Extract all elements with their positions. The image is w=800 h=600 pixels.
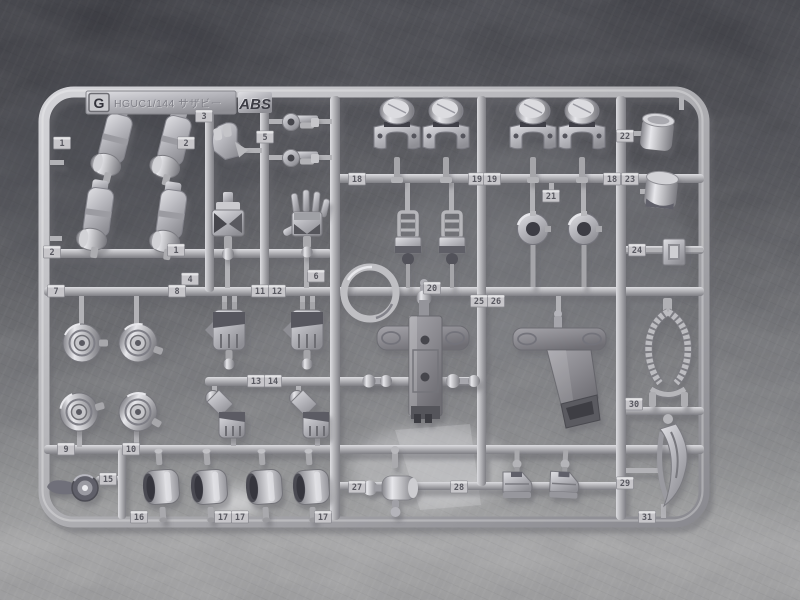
- part-number-tag: 1: [54, 137, 71, 149]
- part-number-tag: 26: [488, 295, 505, 307]
- part-number-tag: 30: [626, 398, 643, 410]
- svg-text:7: 7: [53, 287, 58, 297]
- part-number-tag: 14: [265, 375, 282, 387]
- part-number-tag: 8: [169, 285, 186, 297]
- svg-text:18: 18: [607, 175, 617, 185]
- svg-text:16: 16: [134, 513, 144, 523]
- svg-text:12: 12: [272, 287, 282, 297]
- part-number-tag: 13: [248, 375, 265, 387]
- svg-text:23: 23: [625, 175, 635, 185]
- part-number-tag: 3: [196, 110, 213, 122]
- svg-text:4: 4: [187, 275, 192, 285]
- svg-text:3: 3: [201, 112, 206, 122]
- part-number-tag: 2: [178, 137, 195, 149]
- svg-text:8: 8: [174, 287, 179, 297]
- part-number-tag: 7: [48, 285, 65, 297]
- runner-letter: G: [94, 95, 105, 111]
- material-label: ABS: [238, 96, 271, 113]
- svg-text:22: 22: [620, 132, 630, 142]
- svg-text:15: 15: [103, 475, 113, 485]
- svg-text:10: 10: [126, 445, 136, 455]
- part-number-tag: 4: [182, 273, 199, 285]
- runner-label-plate: G HGUC1/144 サザビー HGUC1/144 サザビー ABS ABS: [86, 91, 272, 114]
- svg-text:31: 31: [642, 513, 652, 523]
- part-number-tag: 6: [308, 270, 325, 282]
- svg-text:6: 6: [313, 272, 318, 282]
- part-number-tag: 21: [543, 190, 560, 202]
- svg-text:29: 29: [620, 479, 630, 489]
- svg-text:13: 13: [251, 377, 261, 387]
- svg-text:1: 1: [173, 246, 178, 256]
- svg-text:30: 30: [629, 400, 639, 410]
- part-number-tag: 17: [215, 511, 232, 523]
- svg-text:17: 17: [318, 513, 328, 523]
- svg-text:11: 11: [255, 287, 265, 297]
- svg-text:24: 24: [632, 246, 642, 256]
- svg-text:17: 17: [218, 513, 228, 523]
- part-number-tag: 29: [617, 477, 634, 489]
- part-number-tag: 12: [269, 285, 286, 297]
- svg-text:27: 27: [352, 483, 362, 493]
- part-number-tag: 20: [424, 282, 441, 294]
- part-number-tag: 22: [617, 130, 634, 142]
- part-number-tag: 23: [622, 173, 639, 185]
- svg-text:14: 14: [268, 377, 278, 387]
- part-number-tag: 9: [58, 443, 75, 455]
- part-number-tag: 19: [469, 173, 486, 185]
- part-number-tag: 18: [604, 173, 621, 185]
- svg-text:5: 5: [262, 133, 267, 143]
- part-number-tag: 2: [44, 246, 61, 258]
- svg-text:2: 2: [183, 139, 188, 149]
- svg-text:20: 20: [427, 284, 437, 294]
- svg-text:18: 18: [352, 175, 362, 185]
- kit-name: HGUC1/144 サザビー: [114, 98, 222, 110]
- part-number-tag: 15: [100, 473, 117, 485]
- svg-text:28: 28: [454, 483, 464, 493]
- svg-text:19: 19: [472, 175, 482, 185]
- part-number-tag: 10: [123, 443, 140, 455]
- part-number-tag: 19: [484, 173, 501, 185]
- svg-text:19: 19: [487, 175, 497, 185]
- svg-text:2: 2: [49, 248, 54, 258]
- model-kit-runner-photo: G HGUC1/144 サザビー HGUC1/144 サザビー ABS ABS …: [0, 0, 800, 600]
- svg-text:17: 17: [235, 513, 245, 523]
- svg-text:21: 21: [546, 192, 556, 202]
- part-number-tag: 1: [168, 244, 185, 256]
- part-number-tag: 31: [639, 511, 656, 523]
- part-number-tag: 17: [315, 511, 332, 523]
- svg-text:1: 1: [59, 139, 64, 149]
- svg-text:25: 25: [474, 297, 484, 307]
- svg-text:26: 26: [491, 297, 501, 307]
- part-number-tag: 5: [257, 131, 274, 143]
- part-number-tag: 17: [232, 511, 249, 523]
- part-number-tag: 16: [131, 511, 148, 523]
- part-number-tag: 24: [629, 244, 646, 256]
- part-number-tag: 25: [471, 295, 488, 307]
- part-number-tag: 11: [252, 285, 269, 297]
- part-number-tag: 28: [451, 481, 468, 493]
- svg-text:9: 9: [63, 445, 68, 455]
- part-number-tag: 27: [349, 481, 366, 493]
- part-number-tag: 18: [349, 173, 366, 185]
